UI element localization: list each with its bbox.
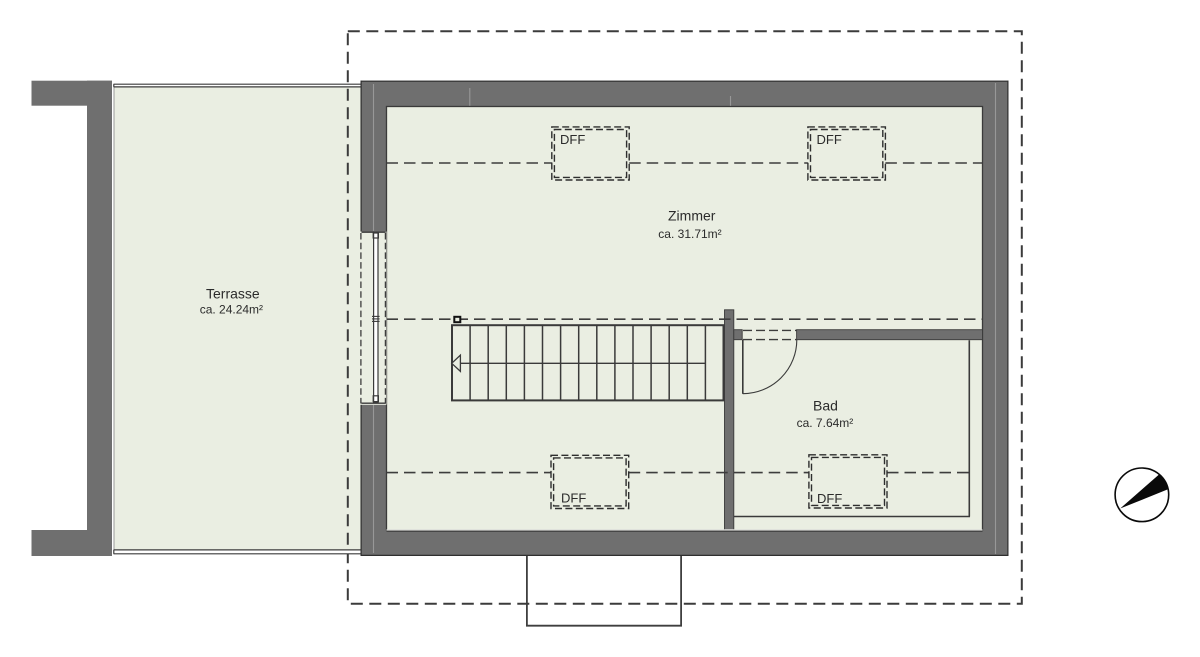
svg-text:Bad: Bad <box>813 398 838 414</box>
svg-text:ca. 31.71m²: ca. 31.71m² <box>658 227 721 241</box>
svg-text:ca. 7.64m²: ca. 7.64m² <box>797 416 854 430</box>
svg-text:Zimmer: Zimmer <box>668 208 716 224</box>
svg-text:DFF: DFF <box>561 491 586 506</box>
svg-text:ca. 24.24m²: ca. 24.24m² <box>200 303 263 317</box>
svg-text:DFF: DFF <box>817 132 842 147</box>
svg-text:DFF: DFF <box>560 132 585 147</box>
svg-text:Terrasse: Terrasse <box>206 286 260 302</box>
svg-text:DFF: DFF <box>817 491 842 506</box>
